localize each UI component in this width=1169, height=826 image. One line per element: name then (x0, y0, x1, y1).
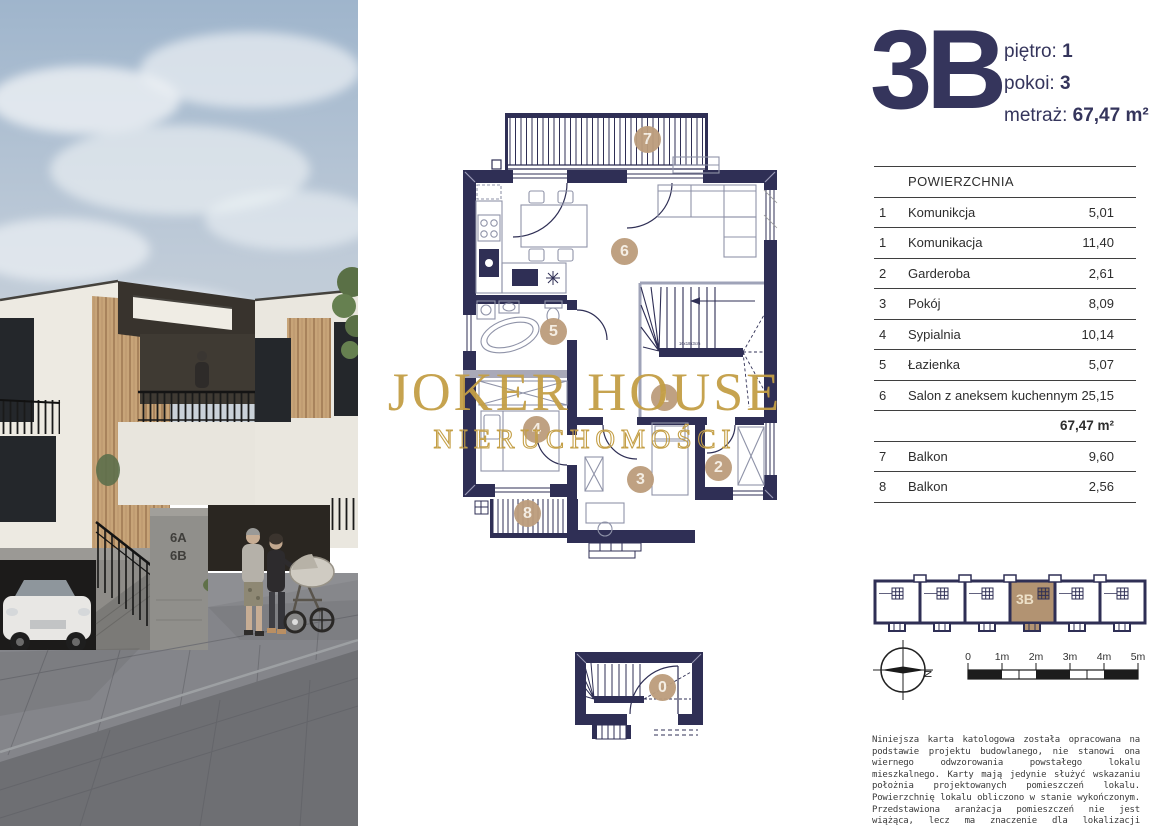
table-row: 3Pokój8,09 (874, 289, 1136, 320)
row-area: 10,14 (1081, 327, 1114, 342)
row-no: 8 (874, 479, 908, 494)
table-row: 1Komunikcja5,01 (874, 198, 1136, 229)
row-no: 3 (874, 296, 908, 311)
row-name: Komunikcja (908, 205, 1089, 220)
row-name: Pokój (908, 296, 1089, 311)
row-name: Komunikacja (908, 235, 1082, 250)
building-photo: 6A 6B (0, 0, 358, 826)
railing (328, 498, 358, 530)
row-no: 1 (874, 235, 908, 250)
room-marker-3: 3 (627, 466, 654, 493)
rooms-value: 3 (1060, 73, 1071, 94)
row-no: 6 (874, 388, 908, 403)
area-line: metraż: 67,47 m² (1004, 100, 1149, 132)
row-area: 2,61 (1089, 266, 1114, 281)
door-window-openings (463, 170, 777, 500)
row-area: 2,56 (1089, 479, 1114, 494)
table-total-row: 67,47 m² (874, 411, 1136, 442)
table-row: 7Balkon9,60 (874, 442, 1136, 473)
balcony-railing (138, 392, 258, 422)
floor-plan: 16x18x3cm (455, 105, 785, 650)
stair-dimension-note: 16x18x3cm (604, 656, 625, 661)
house-number-sign-line1: 6A (170, 530, 187, 545)
scale-label: 1m (995, 651, 1010, 663)
row-name: Garderoba (908, 266, 1089, 281)
row-name: Łazienka (908, 357, 1089, 372)
room-marker-7: 7 (634, 126, 661, 153)
room-marker-2: 2 (705, 454, 732, 481)
north-label: N (921, 670, 933, 678)
scale-label: 2m (1029, 651, 1044, 663)
area-label: metraż: (1004, 105, 1067, 126)
scale-label: 5m (1131, 651, 1146, 663)
disclaimer-text: Niniejsza karta katologowa została oprac… (872, 735, 1140, 826)
table-header-row: POWIERZCHNIA (874, 167, 1136, 198)
highlighted-unit-label: 3B (1016, 591, 1034, 607)
ground-floor-plan: 16x18x3cm (558, 650, 708, 785)
balcony-7 (505, 113, 708, 170)
table-row: 5Łazienka5,07 (874, 350, 1136, 381)
scale-label: 4m (1097, 651, 1112, 663)
scale-bar: 0 1m 2m 3m 4m 5m (958, 650, 1148, 686)
scale-label: 0 (965, 651, 971, 663)
floor-line: piętro: 1 (1004, 36, 1149, 68)
floor-value: 1 (1062, 41, 1073, 62)
room-marker-0: 0 (649, 674, 676, 701)
rooms-line: pokoi: 3 (1004, 68, 1149, 100)
floor-label: piętro: (1004, 41, 1057, 62)
corner-ticks (465, 172, 775, 498)
row-no: 4 (874, 327, 908, 342)
stair-dimension-note: 16x18x3cm (679, 341, 701, 346)
row-no: 1 (874, 205, 908, 220)
row-name: Balkon (908, 449, 1089, 464)
row-area: 25,15 (1081, 388, 1114, 403)
catalog-card-page: 6A 6B (0, 0, 1169, 826)
table-row: 4Sypialnia10,14 (874, 320, 1136, 351)
room-marker-5: 5 (540, 318, 567, 345)
table-row: 2Garderoba2,61 (874, 259, 1136, 290)
row-no: 7 (874, 449, 908, 464)
total-area: 67,47 m² (1060, 418, 1114, 433)
window (0, 436, 56, 522)
compass: N (871, 635, 935, 705)
row-area: 8,09 (1089, 296, 1114, 311)
room-marker-6: 6 (611, 238, 638, 265)
house-number-sign-line2: 6B (170, 548, 187, 563)
window (255, 338, 291, 422)
row-area: 9,60 (1089, 449, 1114, 464)
row-no: 5 (874, 357, 908, 372)
unit-info: piętro: 1 pokoi: 3 metraż: 67,47 m² (1004, 36, 1149, 132)
unit-window-symbols (879, 588, 1128, 599)
row-area: 5,07 (1089, 357, 1114, 372)
table-row: 6Salon z aneksem kuchennym25,15 (874, 381, 1136, 412)
wood-slat-panel (287, 318, 331, 418)
scale-label: 3m (1063, 651, 1078, 663)
table-header: POWIERZCHNIA (908, 174, 1114, 189)
row-name: Balkon (908, 479, 1089, 494)
area-value: 67,47 m² (1073, 105, 1149, 126)
entry-steps (592, 725, 631, 739)
person-on-balcony (195, 351, 209, 388)
row-area: 11,40 (1082, 235, 1114, 250)
room-marker-4: 4 (523, 416, 550, 443)
rooms-label: pokoi: (1004, 73, 1055, 94)
table-row: 8Balkon2,56 (874, 472, 1136, 503)
unit-code: 3B (870, 14, 1001, 126)
room-marker-1: 1 (651, 384, 678, 411)
area-table: POWIERZCHNIA 1Komunikcja5,01 1Komunikacj… (874, 166, 1136, 503)
row-name: Sypialnia (908, 327, 1081, 342)
building-location-diagram: 3B (872, 574, 1148, 634)
threshold-dashes (654, 730, 698, 735)
row-name: Salon z aneksem kuchennym (908, 388, 1081, 403)
row-no: 2 (874, 266, 908, 281)
table-row: 1Komunikacja11,40 (874, 228, 1136, 259)
row-area: 5,01 (1089, 205, 1114, 220)
walls (575, 652, 703, 725)
balcony-railing (0, 400, 60, 434)
compass-needle (881, 667, 925, 674)
room-marker-8: 8 (514, 500, 541, 527)
